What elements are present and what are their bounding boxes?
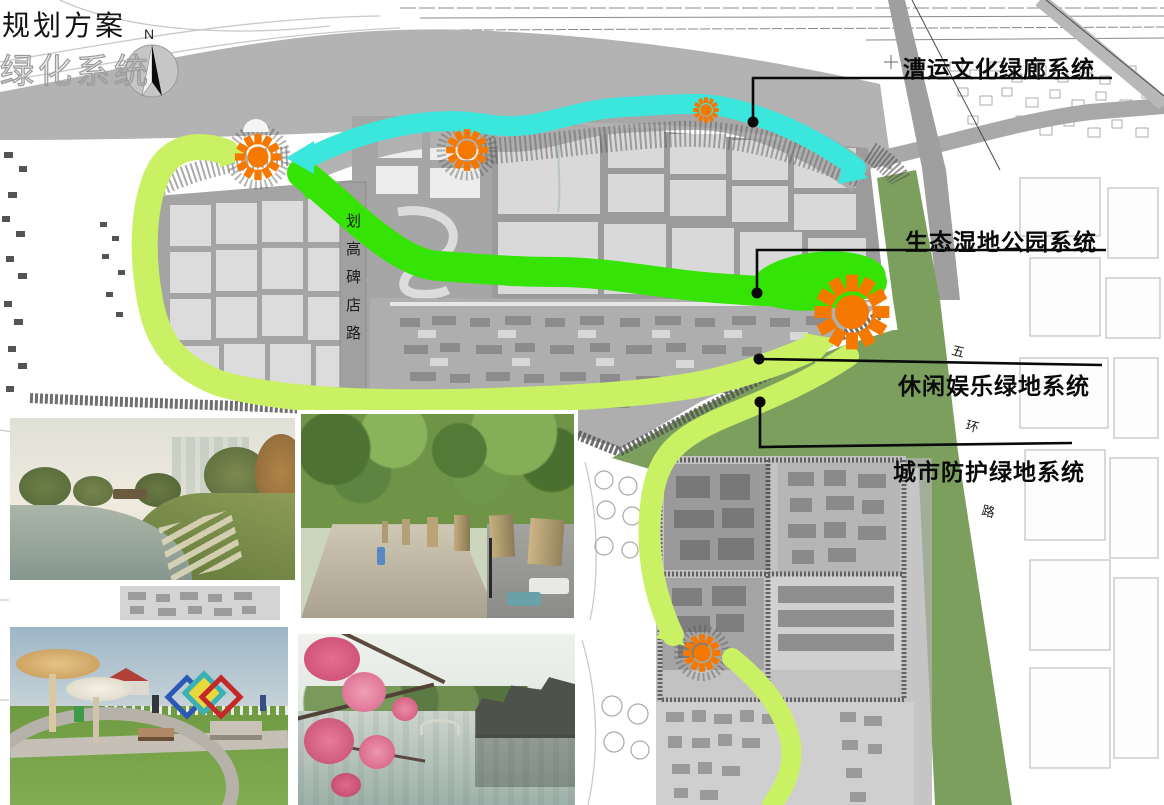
riverbank-road-east xyxy=(862,106,1164,162)
photo-canal-blossom-scene xyxy=(295,631,578,805)
gap-fabric xyxy=(120,586,280,620)
plan-canvas: 规划方案 绿化系统 N 漕运文化绿廊系统 生态湿地公园系统 休闲娱乐绿地系统 城… xyxy=(0,0,1164,805)
left-edge-buildings xyxy=(2,120,125,392)
label-eco-wetland-park: 生态湿地公园系统 xyxy=(905,223,1097,257)
label-canal-culture-corridor: 漕运文化绿廊系统 xyxy=(903,50,1095,84)
watermark-subtitle: 绿化系统 xyxy=(0,44,152,93)
p2-teal-car xyxy=(507,592,541,606)
photo-community-park-pavilions xyxy=(10,625,288,805)
label-leisure-greenspace: 休闲娱乐绿地系统 xyxy=(898,367,1090,401)
p1-pavilion xyxy=(113,489,147,499)
p2-trunk xyxy=(528,518,565,566)
p2-tree-canopy xyxy=(301,414,574,528)
p2-trunk xyxy=(427,517,438,547)
p2-trunk xyxy=(489,514,515,557)
label-urban-protective-greenspace: 城市防护绿地系统 xyxy=(893,453,1085,487)
p1-tree xyxy=(73,476,113,506)
p4-blossom-cluster xyxy=(392,697,418,721)
north-label: N xyxy=(144,26,154,42)
p3-trash-bin xyxy=(74,706,84,722)
p3-picnic-table xyxy=(138,728,174,741)
p2-trunk xyxy=(454,515,470,551)
planned-road-name: 划高碑店路 xyxy=(342,213,363,353)
p3-umbrella-canopy xyxy=(16,649,100,679)
page-title: 规划方案 xyxy=(2,4,126,44)
p4-building-reflection xyxy=(475,735,575,787)
p3-person xyxy=(260,695,266,711)
p2-lamp-post xyxy=(489,538,492,598)
p4-arch-bridge xyxy=(420,719,460,735)
p1-tree xyxy=(19,467,71,507)
p2-trunk xyxy=(382,521,388,543)
p3-bench xyxy=(210,721,262,740)
p4-blossom-cluster xyxy=(304,718,354,764)
p3-umbrella-stem xyxy=(49,674,56,732)
p3-umbrella-stem xyxy=(93,697,99,743)
p2-pedestrian xyxy=(377,547,385,565)
photo-wetland-park-rendering xyxy=(10,418,295,580)
photo-tree-lined-avenue xyxy=(297,410,578,622)
p2-trunk xyxy=(402,519,410,545)
p4-blossom-cluster xyxy=(359,735,395,769)
p3-person xyxy=(152,695,159,713)
